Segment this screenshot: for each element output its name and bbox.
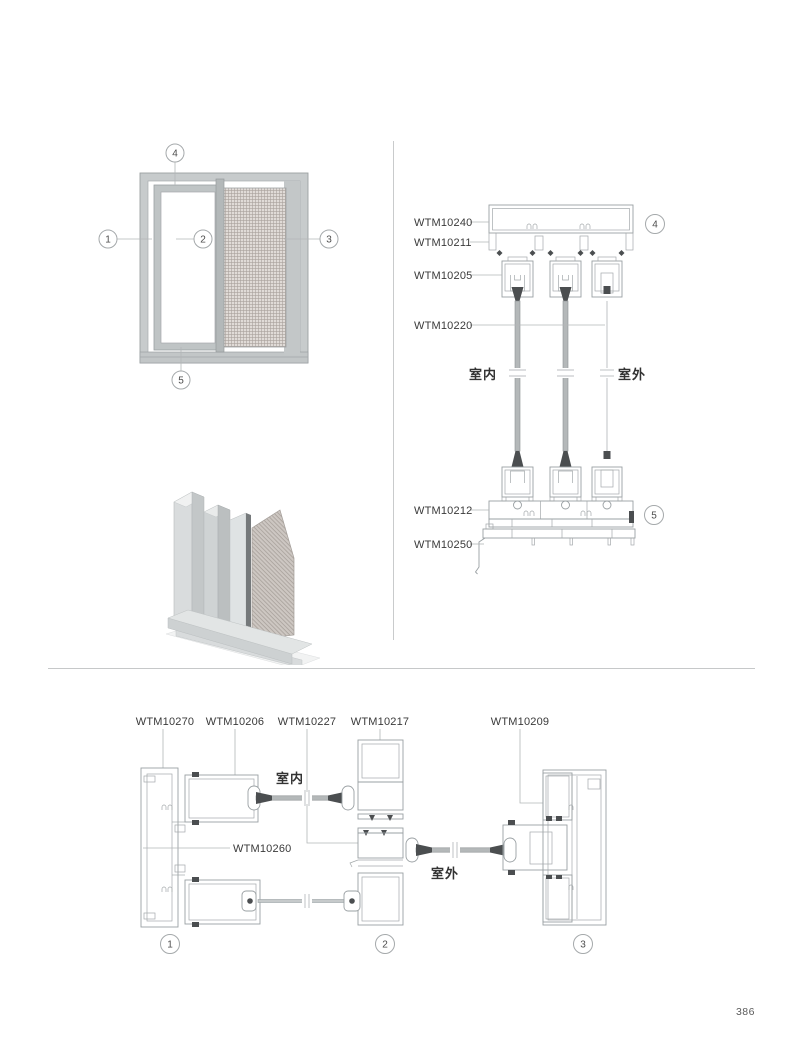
part-label: WTM10211 xyxy=(414,237,472,249)
glass-panels-section xyxy=(508,301,615,451)
left-jamb-profile xyxy=(141,768,185,927)
vsec-callout-4: 4 xyxy=(646,215,665,234)
callout-number: 1 xyxy=(167,940,173,951)
sash-top-2 xyxy=(550,257,581,301)
indoor-glass-panel xyxy=(256,786,354,810)
head-frame-profile xyxy=(489,205,633,256)
section-divider-horizontal xyxy=(48,668,755,669)
outdoor-label: 室外 xyxy=(618,367,646,382)
sash-pocket-top xyxy=(185,772,260,825)
screen-pocket-bottom xyxy=(185,877,260,927)
indoor-label: 室内 xyxy=(276,771,304,786)
callout-number: 5 xyxy=(178,376,184,387)
sash-bottom-2 xyxy=(550,451,581,509)
part-label: WTM10205 xyxy=(414,270,472,282)
sill-frame-profile xyxy=(489,497,634,527)
hsec-callout-2: 2 xyxy=(376,935,395,954)
page-number: 386 xyxy=(700,1006,755,1018)
drip-leg xyxy=(476,538,486,574)
catalog-page: 1 2 3 4 5 xyxy=(0,0,800,1042)
part-label: WTM10250 xyxy=(414,539,472,551)
callout-number: 1 xyxy=(105,235,111,246)
outdoor-glass-panel xyxy=(406,838,506,862)
screen-panel xyxy=(220,181,300,355)
callout-number: 3 xyxy=(580,940,586,951)
callout-number: 4 xyxy=(172,149,178,160)
callout-number: 5 xyxy=(651,511,657,522)
sash-member xyxy=(204,505,230,630)
callout-number: 2 xyxy=(382,940,388,951)
break-mark xyxy=(302,790,312,806)
sash-bottom-profiles xyxy=(502,451,622,509)
window-elevation-diagram: 1 2 3 4 5 xyxy=(48,118,388,418)
part-label: WTM10209 xyxy=(491,716,549,728)
center-interlock-profile xyxy=(344,740,403,925)
vsec-callout-5: 5 xyxy=(645,506,664,525)
sash-bottom-1 xyxy=(502,451,533,509)
head-weatherseals xyxy=(497,250,625,256)
hsec-label-frame: WTM10260 xyxy=(143,843,291,855)
hsec-callout-3: 3 xyxy=(574,935,593,954)
part-label: WTM10206 xyxy=(206,716,264,728)
callout-number: 3 xyxy=(326,235,332,246)
part-label: WTM10270 xyxy=(136,716,194,728)
right-jamb-profile xyxy=(503,770,606,925)
horizontal-section-diagram: WTM10270 WTM10206 WTM10227 WTM10217 WTM1… xyxy=(80,692,720,962)
part-label: WTM10220 xyxy=(414,320,472,332)
track-roller-marks xyxy=(527,224,590,229)
screen-mesh-pane xyxy=(252,510,294,640)
screen-mesh-line xyxy=(258,894,346,908)
sliding-sash xyxy=(154,179,224,352)
clip-marks xyxy=(162,805,172,810)
screen-sash-bottom xyxy=(592,451,622,509)
sash-top-profiles xyxy=(502,257,622,301)
isometric-corner-render xyxy=(152,450,342,665)
vertical-section-diagram: 室内 室外 xyxy=(392,183,692,583)
subsill-profile xyxy=(476,524,636,574)
outdoor-label: 室外 xyxy=(431,866,459,881)
part-label: WTM10227 xyxy=(278,716,336,728)
callout-number: 2 xyxy=(200,235,206,246)
part-label: WTM10212 xyxy=(414,505,472,517)
sash-top-1 xyxy=(502,257,533,301)
screen-sash-top xyxy=(592,257,622,297)
hsec-callout-1: 1 xyxy=(161,935,180,954)
clip-marks xyxy=(162,887,172,892)
part-label: WTM10240 xyxy=(414,217,472,229)
callout-number: 4 xyxy=(652,220,658,231)
break-marks xyxy=(508,368,615,378)
glass-pane xyxy=(230,513,251,633)
part-label: WTM10260 xyxy=(233,843,291,855)
break-mark xyxy=(302,894,312,908)
part-label: WTM10217 xyxy=(351,716,409,728)
indoor-label: 室内 xyxy=(469,367,497,382)
frame-member xyxy=(174,492,204,628)
break-mark xyxy=(450,842,460,858)
